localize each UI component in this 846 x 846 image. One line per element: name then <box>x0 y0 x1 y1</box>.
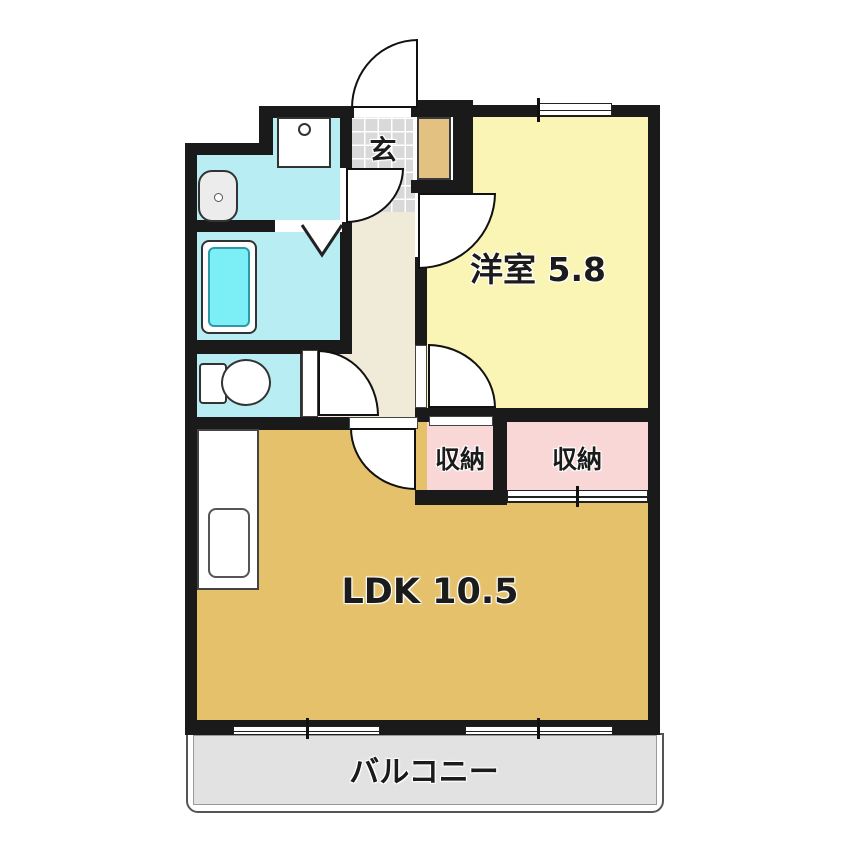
vanity-sink <box>198 170 238 222</box>
wall <box>411 180 473 193</box>
drain-icon <box>214 193 223 202</box>
kitchen-sink <box>208 508 250 578</box>
floorplan: 玄 洋室 5.8 収納 収納 LDK 10.5 バルコニー <box>0 0 846 846</box>
faucet-icon <box>298 123 311 136</box>
wall <box>415 257 427 345</box>
window-tick <box>306 718 309 739</box>
closet-right-label: 収納 <box>552 440 602 476</box>
window-tick <box>537 98 540 122</box>
wall <box>185 143 273 155</box>
shoe-cabinet <box>417 117 451 180</box>
door-leaf <box>302 350 318 417</box>
door-swing-entrance <box>351 39 418 108</box>
balcony-label: バルコニー <box>349 747 498 791</box>
toilet-bowl <box>221 359 271 406</box>
genkan-label: 玄 <box>370 129 397 168</box>
window-tick <box>576 486 579 507</box>
wall <box>493 408 507 492</box>
wall <box>185 220 275 232</box>
window-tick <box>537 718 540 739</box>
door-leaf <box>415 345 427 408</box>
kitchen-counter <box>197 429 259 590</box>
bathtub-water <box>208 247 250 327</box>
ldk-label: LDK 10.5 <box>341 572 518 612</box>
closet-door <box>429 416 493 426</box>
folding-door-icon <box>300 224 344 258</box>
wall <box>340 117 352 168</box>
closet-left-label: 収納 <box>435 440 485 476</box>
window <box>538 103 612 116</box>
wall <box>415 490 507 505</box>
bathtub <box>201 240 257 334</box>
western-room-label: 洋室 5.8 <box>470 243 606 291</box>
washing-machine-pan <box>277 117 331 168</box>
